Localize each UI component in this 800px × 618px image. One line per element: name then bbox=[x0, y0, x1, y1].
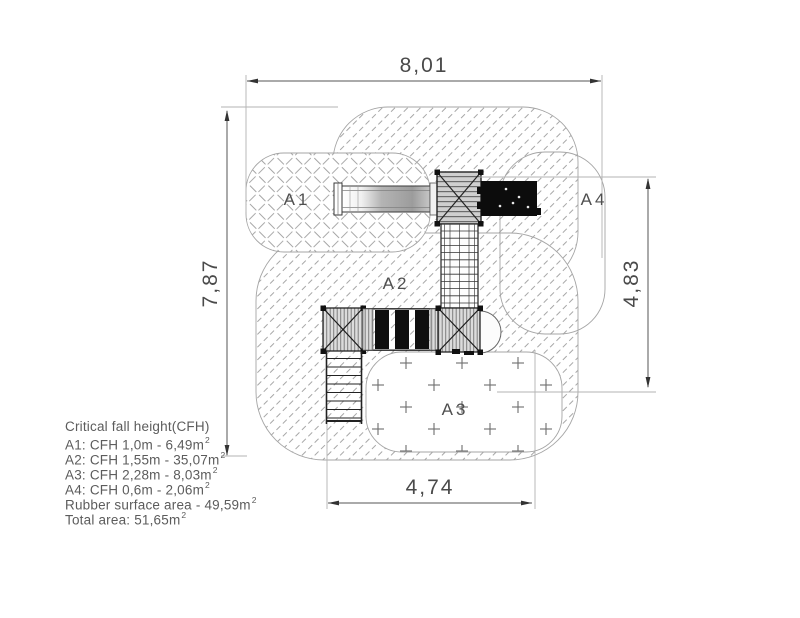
legend-item-rubber-sup: 2 bbox=[252, 495, 257, 505]
area-label-a1: A1 bbox=[284, 190, 311, 210]
legend-item-a1: A1: CFH 1,0m - 6,49m2 bbox=[65, 434, 256, 449]
legend-item-a4: A4: CFH 0,6m - 2,06m2 bbox=[65, 479, 256, 494]
area-label-a2: A2 bbox=[383, 274, 410, 294]
legend-title: Critical fall height(CFH) bbox=[65, 419, 256, 434]
area-label-a3: A3 bbox=[442, 400, 469, 420]
climbing-wall bbox=[477, 181, 541, 216]
legend-item-a3-sup: 2 bbox=[213, 465, 218, 475]
legend-item-a4-sup: 2 bbox=[205, 480, 210, 490]
dimension-right-label: 4,83 bbox=[620, 259, 644, 308]
lower-platform-left bbox=[321, 306, 367, 355]
dimension-top-label: 8,01 bbox=[400, 54, 449, 78]
slide bbox=[334, 183, 437, 215]
dimension-bottom-label: 4,74 bbox=[406, 476, 455, 500]
surface-areas bbox=[246, 107, 605, 460]
legend-item-rubber-area: Rubber surface area - 49,59m2 bbox=[65, 494, 256, 509]
legend-item-a2: A2: CFH 1,55m - 35,07m2 bbox=[65, 449, 256, 464]
cfh-legend: Critical fall height(CFH) A1: CFH 1,0m -… bbox=[65, 419, 256, 524]
top-platform bbox=[435, 170, 484, 227]
area-label-a4: A4 bbox=[581, 190, 608, 210]
net-bridge bbox=[441, 224, 478, 308]
legend-item-a2-sup: 2 bbox=[220, 450, 225, 460]
legend-item-a3: A3: CFH 2,28m - 8,03m2 bbox=[65, 464, 256, 479]
lower-platform-right bbox=[436, 306, 484, 356]
legend-item-a1-sup: 2 bbox=[205, 435, 210, 445]
playground-plan-drawing: 8,01 7,87 4,83 4,74 A1 A2 A3 A4 Critical… bbox=[0, 0, 800, 618]
dimension-left-label: 7,87 bbox=[199, 259, 223, 308]
legend-item-total-sup: 2 bbox=[181, 510, 186, 520]
legend-item-total-text: Total area: 51,65m bbox=[65, 513, 180, 528]
